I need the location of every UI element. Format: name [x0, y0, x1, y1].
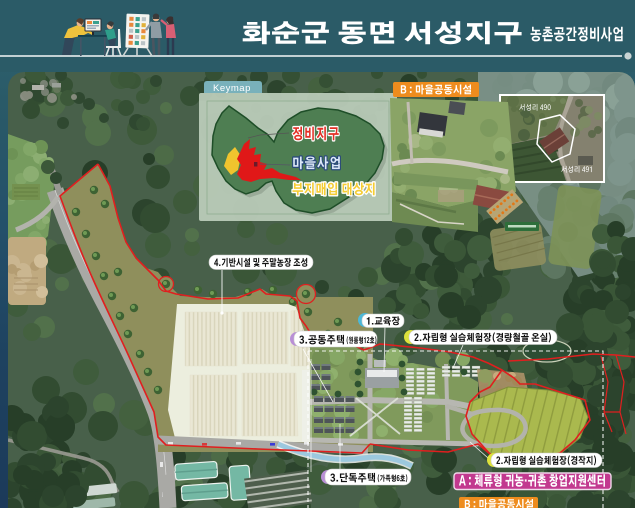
svg-text:Keymap: Keymap [213, 83, 251, 94]
